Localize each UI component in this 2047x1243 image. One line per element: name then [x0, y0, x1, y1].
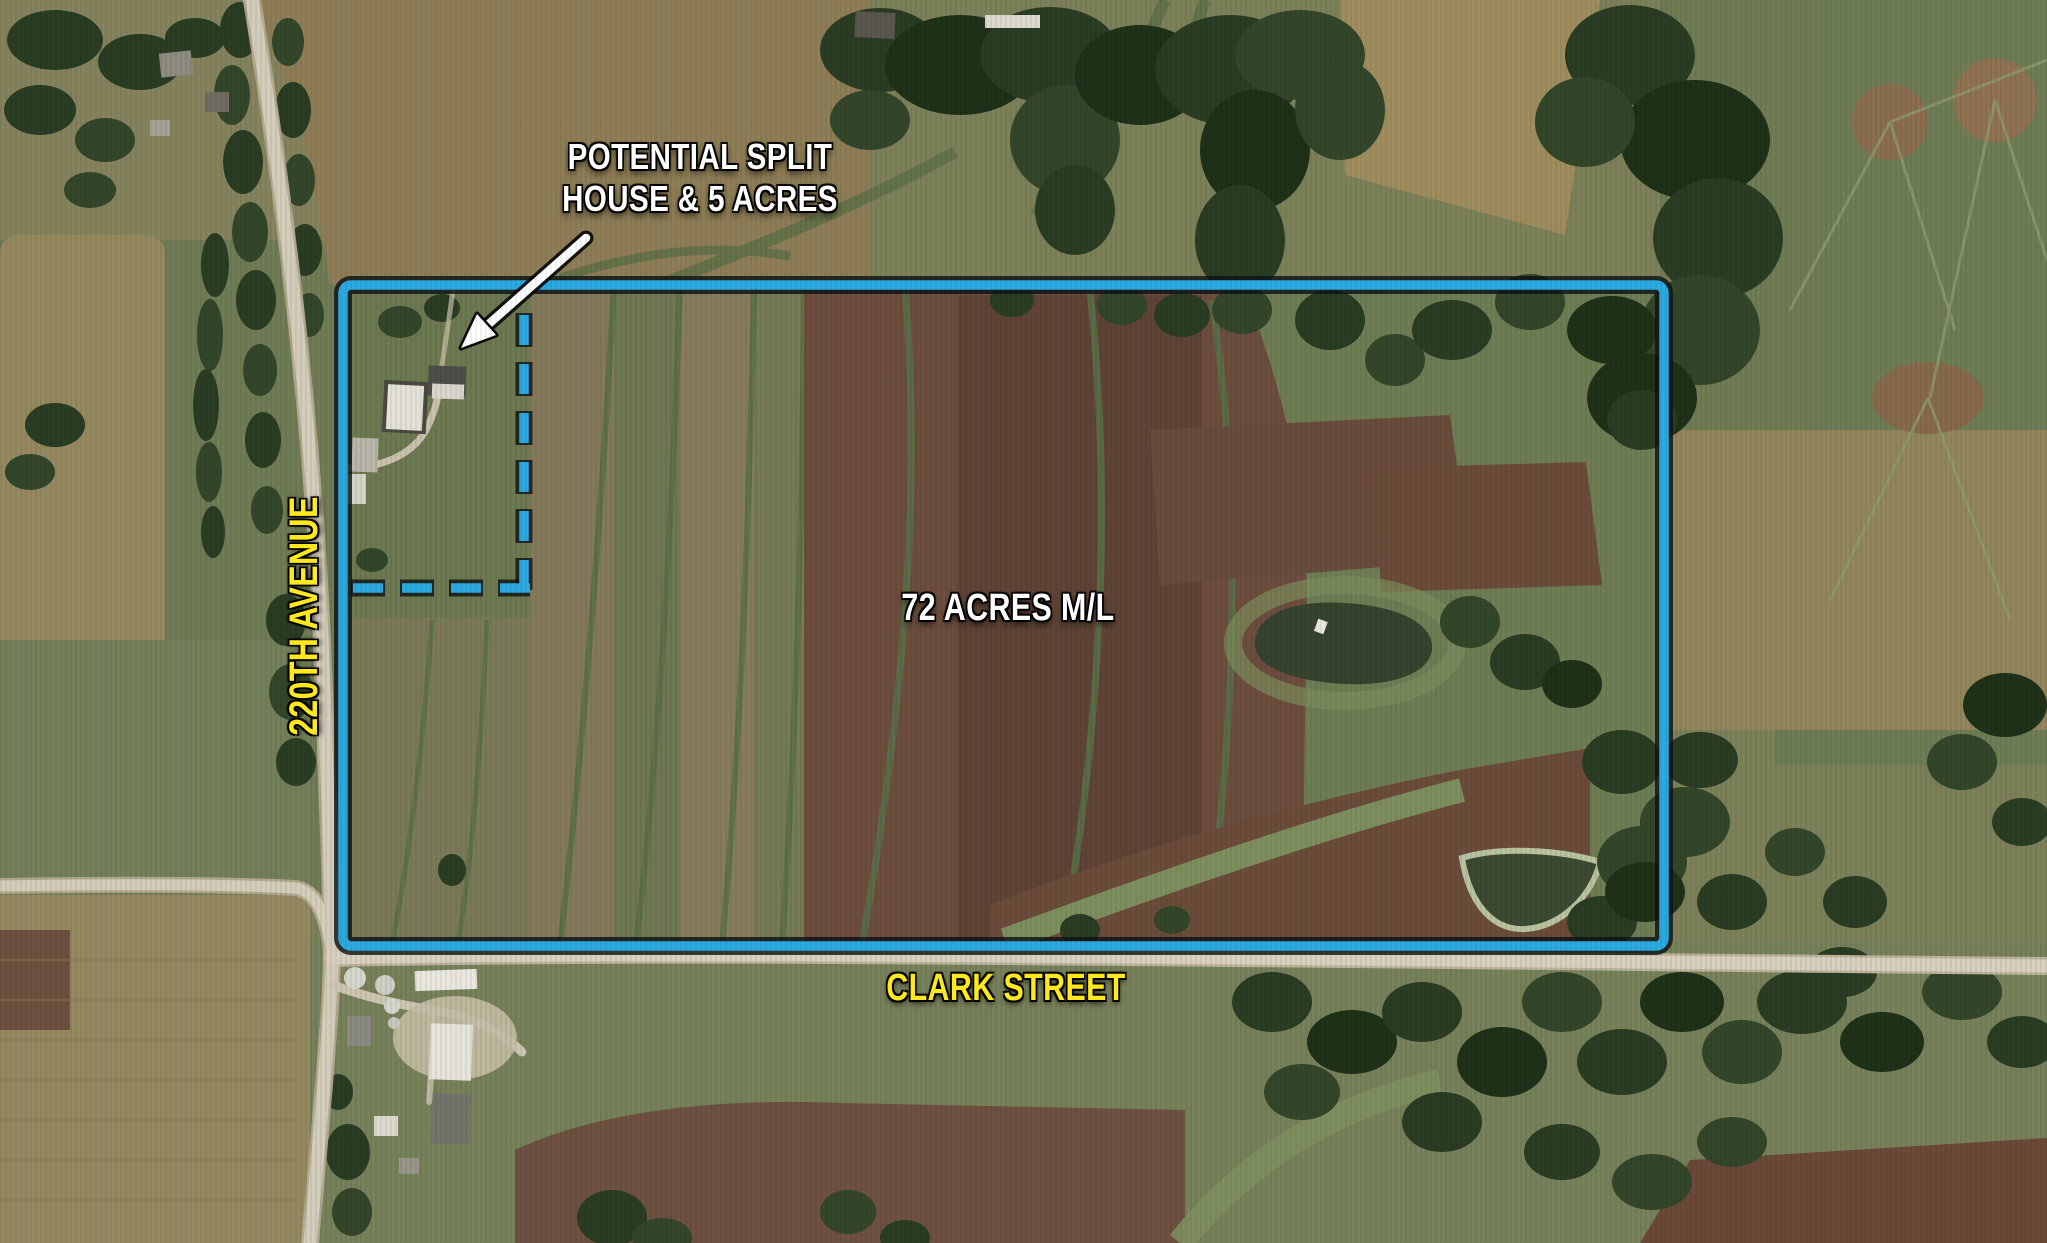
parcel-area-label: 72 ACRES M/L — [901, 589, 1114, 629]
road-label-220th-avenue: 220TH AVENUE — [283, 496, 325, 736]
road-label-clark-street: CLARK STREET — [886, 969, 1126, 1009]
split-callout-line2: HOUSE & 5 ACRES — [562, 178, 838, 220]
aerial-parcel-map: POTENTIAL SPLIT HOUSE & 5 ACRES 72 ACRES… — [0, 0, 2047, 1243]
house — [386, 384, 424, 431]
split-callout-line1: POTENTIAL SPLIT — [562, 136, 838, 178]
south-barn — [429, 1023, 473, 1080]
split-callout-label: POTENTIAL SPLIT HOUSE & 5 ACRES — [562, 136, 838, 220]
